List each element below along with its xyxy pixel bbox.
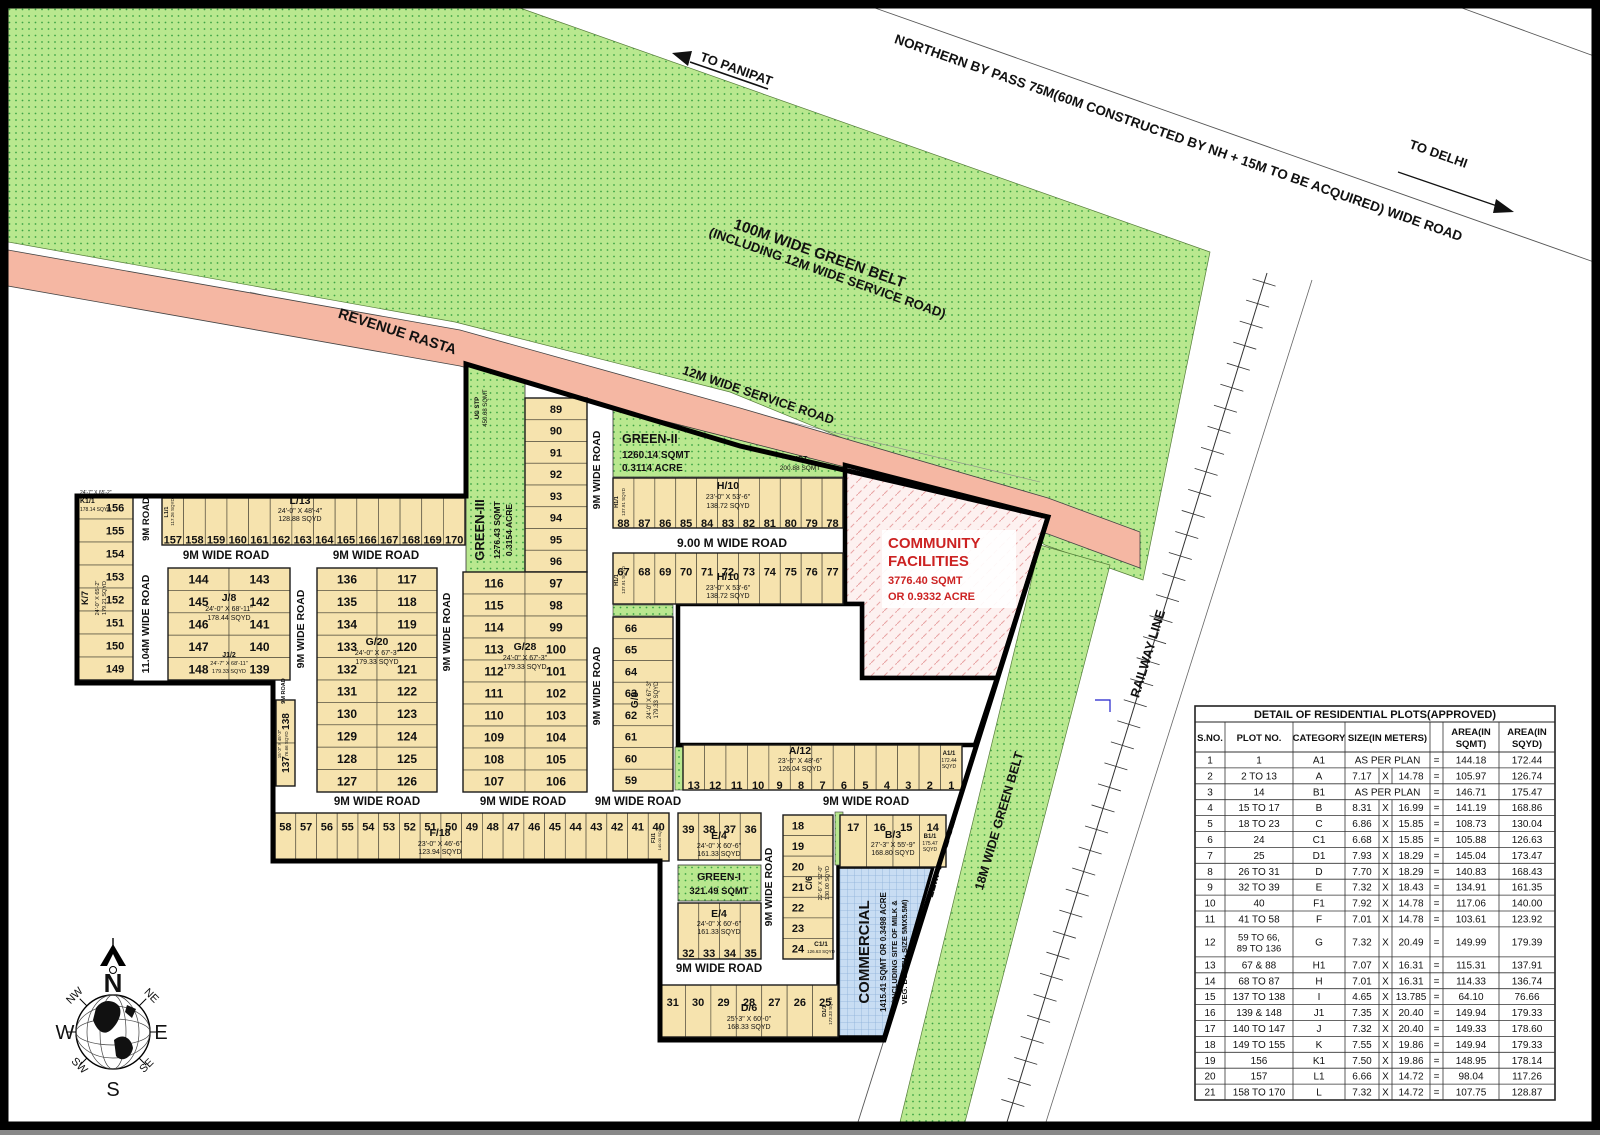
plot-60 [613, 748, 673, 770]
green-1-label: GREEN-I [697, 871, 741, 883]
cell-size-d1: 8.31 [1352, 803, 1372, 814]
plot-number-53: 53 [383, 822, 395, 834]
plot-56 [316, 813, 337, 861]
sub-label: K1/1 [80, 498, 95, 505]
plot-18 [783, 815, 833, 836]
cell-sqyd: 130.04 [1512, 819, 1543, 830]
cell-sqyd: 126.74 [1512, 771, 1543, 782]
plot-number-110: 110 [484, 709, 504, 723]
cell-category: G [1315, 937, 1323, 948]
road-label: 11.04M WIDE ROAD [140, 574, 152, 673]
cell-size-x: X [1382, 883, 1389, 894]
cell-sno: 6 [1207, 835, 1213, 846]
plot-number-21: 21 [792, 882, 804, 894]
plot-number-36: 36 [745, 824, 757, 836]
block-label: G/8 [630, 692, 641, 709]
plot-number-140: 140 [249, 640, 269, 654]
cell-size-d2: 15.85 [1398, 819, 1423, 830]
sub-label: A1/1 [943, 751, 956, 757]
block-label: 24'-0" X 48'-4" [278, 508, 323, 515]
block-label: C/6 [804, 876, 814, 890]
cell-sqmt: 141.19 [1456, 803, 1487, 814]
cell-sqmt: 64.10 [1458, 992, 1483, 1003]
plot-number-42: 42 [611, 822, 623, 834]
plot-number-76: 76 [806, 566, 818, 578]
cell-size-d2: 20.40 [1398, 1024, 1423, 1035]
road-label: 9M WIDE ROAD [823, 796, 909, 808]
cell-sno: 5 [1207, 819, 1213, 830]
plot-block-g8: 6665646362616059 [613, 617, 673, 791]
plot-number-93: 93 [550, 491, 562, 503]
plot-number-56: 56 [321, 822, 333, 834]
cell-sqyd: 178.60 [1512, 1024, 1543, 1035]
cell-sno: 1 [1207, 755, 1213, 766]
cell-size-d2: 14.72 [1398, 1088, 1423, 1099]
cell-category: H1 [1313, 960, 1326, 971]
cell-size-d1: 7.50 [1352, 1056, 1372, 1067]
plot-number-61: 61 [625, 732, 637, 744]
plot-number-135: 135 [337, 595, 357, 609]
plot-39 [678, 813, 699, 860]
ug-stp-label: UG STP [475, 397, 481, 419]
cell-sqyd: 179.33 [1512, 1008, 1543, 1019]
cell-category: A [1316, 771, 1323, 782]
cell-eq: = [1434, 803, 1440, 814]
cell-plot: 15 TO 17 [1238, 803, 1280, 814]
cell-size-x: X [1382, 1040, 1389, 1051]
block-label: 179.21 SQYD [102, 581, 108, 615]
cell-plot: 25 [1253, 851, 1265, 862]
plot-number-90: 90 [550, 426, 562, 438]
plot-number-35: 35 [745, 948, 757, 960]
plot-65 [613, 639, 673, 661]
plot-number-58: 58 [279, 822, 291, 834]
block-label: 179.33 SQYD [355, 659, 398, 666]
cell-sqmt: 105.97 [1456, 771, 1487, 782]
plot-number-144: 144 [188, 573, 208, 587]
block-label: 24'-0" X 67'-3" [503, 655, 548, 662]
table-header: AREA(IN [1507, 727, 1547, 738]
block-label: 128.88 SQYD [278, 516, 321, 523]
cell-size-x: X [1382, 1008, 1389, 1019]
cell-size-d1: 7.32 [1352, 883, 1372, 894]
plot-number-119: 119 [397, 618, 417, 632]
residential-plots-table: DETAIL OF RESIDENTIAL PLOTS(APPROVED)S.N… [1195, 706, 1555, 1100]
cell-size-d2: 14.78 [1398, 914, 1423, 925]
cell-size-d1: 7.35 [1352, 1008, 1372, 1019]
plot-number-139: 139 [249, 662, 269, 676]
cell-eq: = [1434, 914, 1440, 925]
cell-size-d1: 7.32 [1352, 1088, 1372, 1099]
cell-sqyd: 178.14 [1512, 1056, 1543, 1067]
cell-sno: 16 [1204, 1008, 1216, 1019]
plot-number-123: 123 [397, 707, 417, 721]
block-label: E/4 [711, 830, 727, 842]
cell-size-d1: 7.93 [1352, 851, 1372, 862]
block-label: E/4 [711, 908, 727, 920]
plot-23 [783, 918, 833, 939]
plot-number-112: 112 [484, 665, 504, 679]
cell-size-d1: 6.66 [1352, 1072, 1372, 1083]
plot-number-107: 107 [484, 775, 504, 789]
cell-size: AS PER PLAN [1355, 755, 1421, 766]
block-label: 24'-0" X 65'-2" [95, 581, 101, 616]
plot-41 [628, 813, 649, 861]
block-label: 24'-0" X 67'-3" [355, 650, 400, 657]
sub-label: 137.91 SQYD [621, 487, 626, 516]
cell-size-d2: 14.72 [1398, 1072, 1423, 1083]
plot-43 [586, 813, 607, 861]
cell-eq: = [1434, 937, 1440, 948]
cell-size-x: X [1382, 819, 1389, 830]
plot-number-73: 73 [743, 566, 755, 578]
plot-number-143: 143 [249, 573, 269, 587]
plot-number-29: 29 [717, 997, 729, 1009]
plot-number-99: 99 [549, 621, 563, 635]
cell-sqyd: 76.66 [1514, 992, 1539, 1003]
cell-sno: 15 [1204, 992, 1216, 1003]
block-label: 138.72 SQYD [706, 593, 749, 600]
plot-number-154: 154 [106, 549, 125, 561]
plot-number-95: 95 [550, 534, 562, 546]
cell-sqmt: 134.91 [1456, 883, 1487, 894]
plot-number-41: 41 [632, 822, 644, 834]
cell-plot: 32 TO 39 [1238, 883, 1280, 894]
cell-sqmt: 107.75 [1456, 1088, 1487, 1099]
plot-number-59: 59 [625, 775, 637, 787]
cell-plot: 40 [1253, 899, 1265, 910]
plot-63 [613, 682, 673, 704]
cell-size-d2: 18.29 [1398, 851, 1423, 862]
cell-sqmt: 140.83 [1456, 867, 1487, 878]
cell-sqmt: 144.18 [1456, 755, 1487, 766]
plot-30 [685, 985, 710, 1037]
cell-size-d2: 18.43 [1398, 883, 1423, 894]
plot-number-68: 68 [638, 566, 650, 578]
cell-size-x: X [1382, 960, 1389, 971]
plot-number-70: 70 [680, 566, 692, 578]
cell-category: B1 [1313, 787, 1326, 798]
block-label: 168.80 SQYD [871, 850, 914, 857]
cell-size-x: X [1382, 771, 1389, 782]
cell-size-x: X [1382, 899, 1389, 910]
plot-number-151: 151 [106, 618, 124, 630]
sub-label: 137.91 SQYD [621, 565, 626, 594]
block-label: G/20 [366, 636, 389, 648]
plot-number-118: 118 [397, 595, 417, 609]
plot-49 [462, 813, 483, 861]
commercial-label: (INCLUDING SITE OF MILK & [890, 900, 899, 1004]
plot-number-100: 100 [546, 643, 566, 657]
community-label: OR 0.9332 ACRE [888, 591, 975, 603]
cell-sno: 7 [1207, 851, 1213, 862]
block-label: 76.66 SQYD [284, 731, 289, 757]
plot-number-22: 22 [792, 903, 804, 915]
cell-category: B [1316, 803, 1323, 814]
cell-sqyd: 126.63 [1512, 835, 1543, 846]
plot-number-26: 26 [794, 997, 806, 1009]
cell-plot: 2 TO 13 [1241, 771, 1277, 782]
block-label: 24'-0" X 60'-6" [697, 921, 742, 928]
block-label: 24'-0" X 60'-6" [697, 843, 742, 850]
compass-s: S [106, 1079, 119, 1101]
block-label: 15'-3" X 45'-3" [277, 729, 282, 758]
cell-eq: = [1434, 787, 1440, 798]
cell-eq: = [1434, 899, 1440, 910]
cell-sqmt: 149.99 [1456, 937, 1487, 948]
cell-plot: 41 TO 58 [1238, 914, 1280, 925]
block-label: 179.33 SQYD [654, 681, 660, 719]
plot-number-54: 54 [362, 822, 375, 834]
sub-label: C1/1 [814, 941, 828, 948]
cell-category: F [1316, 914, 1322, 925]
road-label: 9M WIDE ROAD [763, 847, 775, 926]
cell-size-d1: 7.32 [1352, 1024, 1372, 1035]
table-header: PLOT NO. [1237, 733, 1282, 744]
cell-size-d1: 7.01 [1352, 976, 1372, 987]
green-sliver [675, 747, 683, 790]
cell-size-d1: 4.65 [1352, 992, 1372, 1003]
cell-size-d1: 7.55 [1352, 1040, 1372, 1051]
cell-category: H [1315, 976, 1322, 987]
block-label: 179.33 SQYD [212, 669, 246, 675]
cell-sqmt: 149.94 [1456, 1008, 1487, 1019]
cell-sqyd: 137.91 [1512, 960, 1543, 971]
cell-size-d2: 15.85 [1398, 835, 1423, 846]
plot-number-43: 43 [590, 822, 602, 834]
road-label: 9M WIDE ROAD [591, 646, 603, 725]
green-sliver [613, 605, 673, 616]
green-2-label: GREEN-II [622, 432, 678, 446]
cell-sqmt: 108.73 [1456, 819, 1487, 830]
cell-plot: 140 TO 147 [1233, 1024, 1286, 1035]
plot-74 [759, 553, 780, 604]
cell-category: J [1317, 1024, 1322, 1035]
plot-number-46: 46 [528, 822, 540, 834]
table-header: S.NO. [1197, 733, 1223, 744]
road-label: 9.00 M WIDE ROAD [677, 536, 787, 550]
cell-eq: = [1434, 771, 1440, 782]
plot-number-122: 122 [397, 685, 417, 699]
plot-number-128: 128 [337, 752, 357, 766]
plot-75 [780, 553, 801, 604]
plot-61 [613, 726, 673, 748]
cell-size-d1: 7.07 [1352, 960, 1372, 971]
cell-size-d1: 7.17 [1352, 771, 1372, 782]
plot-45 [545, 813, 566, 861]
sub-label: H1/1 [614, 574, 620, 586]
cell-eq: = [1434, 883, 1440, 894]
cell-sqyd: 128.87 [1512, 1088, 1543, 1099]
plot-number-17: 17 [847, 822, 859, 834]
cell-plot: 68 TO 87 [1238, 976, 1280, 987]
plot-number-19: 19 [792, 841, 804, 853]
plot-number-103: 103 [546, 709, 566, 723]
plot-number-45: 45 [549, 822, 561, 834]
table-header: AREA(IN [1451, 727, 1491, 738]
plot-number-115: 115 [484, 599, 504, 613]
cell-size-d2: 13.785 [1396, 992, 1427, 1003]
plot-number-96: 96 [550, 556, 562, 568]
cell-eq: = [1434, 1088, 1440, 1099]
sub-label: 117.26 SQYD [170, 498, 175, 526]
cell-sqyd: 140.00 [1512, 899, 1543, 910]
cell-size-d2: 20.49 [1398, 937, 1423, 948]
plot-number-18: 18 [792, 820, 804, 832]
cell-sqyd: 172.44 [1512, 755, 1543, 766]
road-label: 9M WIDE ROAD [676, 963, 762, 975]
plot-36 [740, 813, 761, 860]
block-label: 23'-0" X 53'-6" [706, 494, 751, 501]
plot-number-125: 125 [397, 752, 417, 766]
block-label: 161.33 SQYD [697, 851, 740, 858]
plot-number-109: 109 [484, 731, 504, 745]
cell-sno: 19 [1204, 1056, 1216, 1067]
plot-68 [634, 553, 655, 604]
cell-sqyd: 136.74 [1512, 976, 1543, 987]
cell-sqmt: 103.61 [1456, 914, 1487, 925]
block-label: 126.04 SQYD [778, 766, 821, 773]
cell-size-d2: 16.31 [1398, 960, 1423, 971]
cell-sqmt: 105.88 [1456, 835, 1487, 846]
cell-plot: 26 TO 31 [1238, 867, 1280, 878]
plot-number-48: 48 [487, 822, 499, 834]
cell-size-x: X [1382, 1072, 1389, 1083]
cell-size-d1: 7.70 [1352, 867, 1372, 878]
block-label: 168.33 SQYD [727, 1024, 770, 1031]
plot-number-155: 155 [106, 526, 124, 538]
plot-number-105: 105 [546, 753, 566, 767]
plot-59 [613, 769, 673, 791]
plot-number-97: 97 [549, 577, 563, 591]
block-label: 25'-3" X 60'-0" [727, 1016, 772, 1023]
plot-block-g28: 1169711598114991131001121011111021101031… [463, 572, 587, 792]
plot-number-24: 24 [792, 944, 805, 956]
plot-76 [801, 553, 822, 604]
green-3-label: 1276.43 SQMT [492, 500, 502, 558]
cell-size-d1: 6.86 [1352, 819, 1372, 830]
block-label: 179.33 SQYD [503, 664, 546, 671]
block-label: G/28 [514, 641, 537, 653]
block-label: A/12 [789, 745, 811, 757]
plot-44 [565, 813, 586, 861]
cell-size-x: X [1382, 867, 1389, 878]
plot-block-g20: 1361171351181341191331201321211311221301… [317, 568, 437, 792]
cell-category: J1 [1314, 1008, 1325, 1019]
cell-sno: 11 [1205, 914, 1216, 925]
cell-plot: 14 [1253, 787, 1265, 798]
plot-number-106: 106 [546, 775, 566, 789]
plot-number-30: 30 [692, 997, 704, 1009]
cell-size-d1: 7.92 [1352, 899, 1372, 910]
block-label: 24'-0" X 68'-11" [205, 606, 253, 613]
plot-number-150: 150 [106, 641, 124, 653]
plot-number-127: 127 [337, 774, 357, 788]
plot-69 [655, 553, 676, 604]
cell-size-x: X [1382, 992, 1389, 1003]
plot-number-15: 15 [900, 822, 912, 834]
plot-number-23: 23 [792, 923, 804, 935]
cell-sno: 10 [1204, 899, 1216, 910]
plot-52 [399, 813, 420, 861]
plot-number-126: 126 [397, 774, 417, 788]
cell-sqyd: 175.47 [1512, 787, 1543, 798]
block-label: 27'-3" X 55'-9" [871, 842, 916, 849]
cell-plot: 1 [1256, 755, 1262, 766]
plot-62 [613, 704, 673, 726]
cell-eq: = [1434, 1008, 1440, 1019]
plot-55 [337, 813, 358, 861]
cell-eq: = [1434, 755, 1440, 766]
plot-number-153: 153 [106, 572, 124, 584]
plot-48 [482, 813, 503, 861]
cell-plot: 24 [1253, 835, 1265, 846]
cell-eq: = [1434, 1072, 1440, 1083]
block-label: J1/2 [222, 652, 236, 659]
cell-size-d2: 14.78 [1398, 771, 1423, 782]
plot-number-138: 138 [281, 713, 292, 730]
plot-number-149: 149 [106, 664, 124, 676]
block-label: H/10 [717, 571, 739, 583]
cell-category: L [1316, 1088, 1322, 1099]
cell-plot: 59 TO 66, [1238, 932, 1280, 943]
cell-eq: = [1434, 992, 1440, 1003]
cell-eq: = [1434, 1056, 1440, 1067]
cell-sqmt: 145.04 [1456, 851, 1487, 862]
plot-number-132: 132 [337, 662, 357, 676]
cell-sqyd: 179.33 [1512, 1040, 1543, 1051]
green-2-label: 1260.14 SQMT [622, 450, 690, 461]
block-label: D/6 [741, 1002, 758, 1014]
road-label: 9M WIDE ROAD [480, 796, 566, 808]
sub-label: 140.00 SQYD [657, 826, 662, 851]
cell-sqyd: 161.35 [1512, 883, 1543, 894]
plot-number-117: 117 [397, 573, 417, 587]
plot-number-52: 52 [404, 822, 416, 834]
plot-number-89: 89 [550, 404, 562, 416]
cell-size-x: X [1382, 851, 1389, 862]
plot-number-49: 49 [466, 822, 478, 834]
cell-sqmt: 98.04 [1458, 1072, 1483, 1083]
cell-sno: 18 [1204, 1040, 1216, 1051]
cell-eq: = [1434, 851, 1440, 862]
cell-plot: 149 TO 155 [1233, 1040, 1286, 1051]
commercial-label: COMMERCIAL [856, 900, 873, 1003]
cell-size-d2: 19.86 [1398, 1040, 1423, 1051]
cell-category: D1 [1313, 851, 1326, 862]
cell-category: K1 [1313, 1056, 1326, 1067]
plot-number-14: 14 [927, 822, 940, 834]
cell-sqmt: 148.95 [1456, 1056, 1487, 1067]
plot-number-120: 120 [397, 640, 417, 654]
cell-sno: 17 [1204, 1024, 1216, 1035]
compass-n: N [104, 968, 123, 998]
plot-number-71: 71 [701, 566, 713, 578]
cell-size-x: X [1382, 1088, 1389, 1099]
cell-size-x: X [1382, 1024, 1389, 1035]
plot-number-32: 32 [682, 948, 694, 960]
plot-number-136: 136 [337, 573, 357, 587]
cell-sqyd: 173.47 [1512, 851, 1543, 862]
cell-plot: 158 TO 170 [1233, 1088, 1286, 1099]
road-label: 9M WIDE ROAD [183, 550, 269, 562]
plot-number-77: 77 [826, 566, 838, 578]
cell-plot: 18 TO 23 [1238, 819, 1280, 830]
cell-category: I [1318, 992, 1321, 1003]
plot-58 [275, 813, 296, 861]
plot-number-92: 92 [550, 469, 562, 481]
block-label: 123.94 SQYD [418, 849, 461, 856]
